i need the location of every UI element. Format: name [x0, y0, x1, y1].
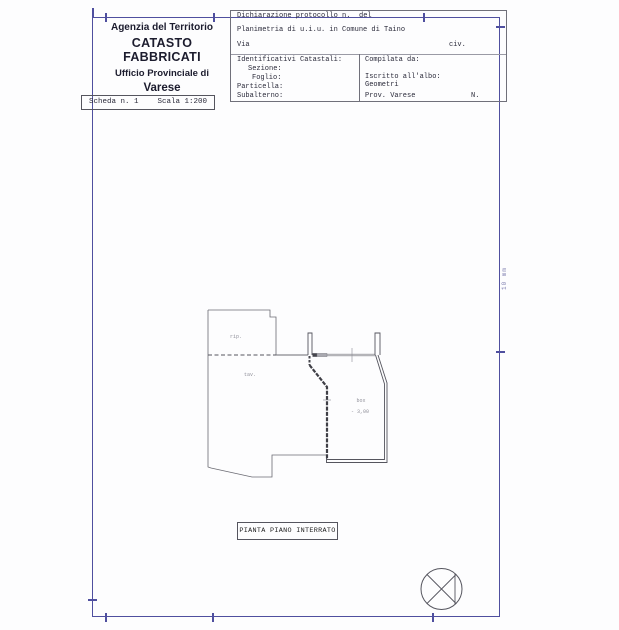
wall-pier-right	[375, 333, 380, 355]
sheet-number: Scheda n. 1	[89, 99, 139, 107]
field-sezione: Sezione:	[248, 66, 282, 73]
symbol-cross-lines	[427, 574, 456, 604]
compiled-by-title: Compilata da:	[365, 57, 420, 64]
gate-hatch	[317, 353, 327, 356]
cadastral-title: Identificativi Catastali:	[237, 57, 342, 64]
room-a-walls	[208, 310, 276, 355]
scale-value: Scala 1:200	[157, 99, 207, 107]
room-c-top-wall	[327, 354, 375, 356]
letterhead: Agenzia del Territorio CATASTO FABBRICAT…	[94, 22, 230, 94]
compiler-province-label: Prov. Varese	[365, 93, 415, 100]
compiler-number-label: N.	[471, 93, 479, 100]
via-label: Via	[237, 42, 250, 49]
room-b-label: tav.	[244, 372, 256, 378]
stepped-wall	[310, 365, 328, 460]
office-line: Ufficio Provinciale di	[94, 68, 230, 79]
plan-caption-box: PIANTA PIANO INTERRATO	[237, 522, 338, 540]
wall-pier-left	[308, 333, 312, 355]
field-subalterno: Subalterno:	[237, 93, 283, 100]
room-c-level: - 3,00	[351, 409, 369, 415]
protocol-label: Dichiarazione protocollo n.	[237, 13, 350, 20]
room-a-label: rip.	[230, 334, 242, 340]
frame-tick	[105, 13, 107, 22]
room-b-walls	[208, 310, 327, 477]
protocol-del-label: del	[359, 13, 372, 20]
form-separator	[231, 54, 506, 55]
margin-ruler-note: 10 mm	[501, 267, 508, 290]
frame-tick	[432, 613, 434, 622]
frame-tick	[88, 599, 97, 601]
planimetria-line: Planimetria di u.i.u. in Comune di Taino	[237, 27, 405, 34]
plan-caption: PIANTA PIANO INTERRATO	[239, 527, 335, 535]
form-column-divider	[359, 54, 360, 101]
field-particella: Particella:	[237, 84, 283, 91]
door-block	[313, 353, 318, 357]
cadastral-planimetria-sheet: Agenzia del Territorio CATASTO FABBRICAT…	[0, 0, 619, 630]
frame-tick	[213, 13, 215, 22]
album-label: Iscritto all'albo:	[365, 74, 441, 81]
room-c-inner-wall	[327, 355, 385, 460]
civ-label: civ.	[449, 42, 466, 49]
frame-tick	[212, 613, 214, 622]
province-name: Varese	[94, 82, 230, 94]
room-c-label: box	[356, 398, 365, 404]
album-value: Geometri	[365, 82, 399, 89]
sheet-scale-bar: Scheda n. 1 Scala 1:200	[81, 95, 215, 110]
declaration-form: Dichiarazione protocollo n. del Planimet…	[230, 10, 507, 102]
registry-title: CATASTO FABBRICATI	[94, 36, 230, 64]
field-foglio: Foglio:	[252, 75, 281, 82]
floor-plan-drawing: rip. tav. box - 3,00	[190, 295, 420, 485]
agency-name: Agenzia del Territorio	[94, 22, 230, 33]
surveyor-circle-symbol	[419, 566, 465, 614]
frame-tick	[496, 351, 505, 353]
frame-tick	[92, 8, 94, 17]
frame-tick	[105, 613, 107, 622]
